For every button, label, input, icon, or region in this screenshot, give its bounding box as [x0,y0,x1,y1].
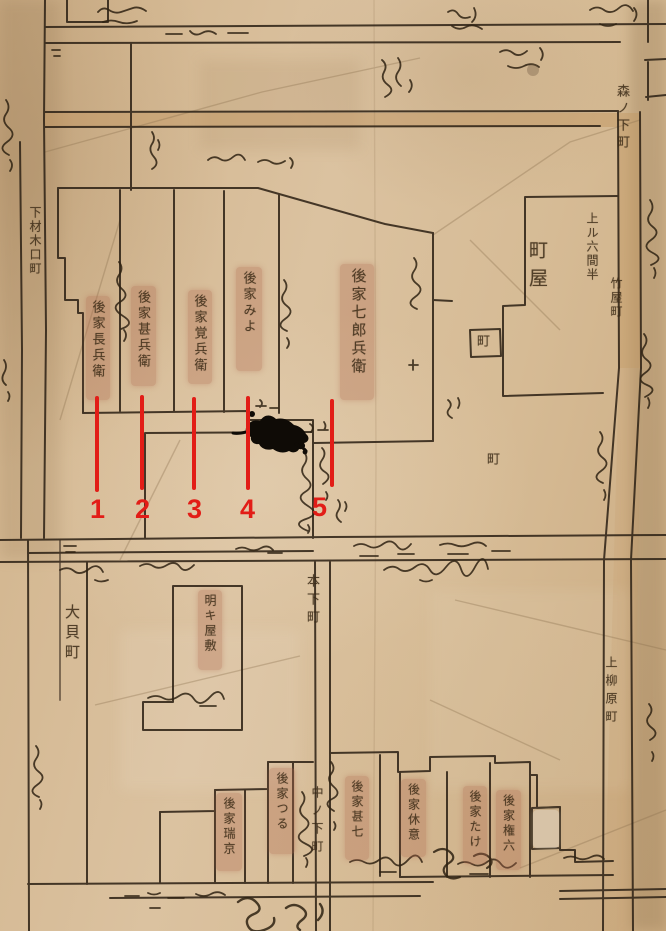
marker-number-4: 4 [240,496,255,523]
parcel-highlight-7: 後家つる [269,768,295,854]
parcel-label-10: 後家たけ [469,790,481,850]
parcel-highlight-6: 後家瑞京 [216,793,242,871]
label-naka-no-shita-machi: 中ノ下町 [311,786,323,858]
parcel-label-7: 後家つる [276,772,288,832]
marker-number-1: 1 [90,496,105,523]
label-machi-upper: 町 [476,334,489,350]
label-shimo-guchi-machi: 下材木口町 [29,206,41,276]
parcel-highlight-vacant: 明キ屋敷 [198,590,222,670]
parcel-label-4: 後家みよ [243,271,256,335]
parcel-label-9: 後家休意 [408,783,420,843]
parcel-label-5: 後家七郎兵衛 [350,268,365,376]
label-agaru-rokkenhan: 上ル六間半 [586,212,598,282]
parcel-highlight-3: 後家覚兵衛 [188,290,212,384]
historical-japanese-map: 後家長兵衛 後家甚兵衛 後家覚兵衛 後家みよ 後家七郎兵衛 後家瑞京 後家つる … [0,0,666,931]
label-machi-lower: 町 [486,452,499,468]
label-takeya-machi: 竹屋町 [610,277,622,319]
marker-line-4 [246,396,250,490]
parcel-highlight-11: 後家権六 [496,790,521,870]
parcel-label-3: 後家覚兵衛 [194,294,207,374]
parcel-highlight-2: 後家甚兵衛 [131,286,156,386]
marker-number-5: 5 [312,494,327,521]
label-ogai-machi: 大貝町 [63,604,78,664]
parcel-label-8: 後家甚七 [351,780,363,840]
marker-number-2: 2 [135,496,150,523]
parcel-highlight-1: 後家長兵衛 [86,296,110,400]
parcel-highlight-10: 後家たけ [463,786,487,864]
label-mori-no-shita-machi: 森ノ下町 [616,84,629,152]
parcel-label-1: 後家長兵衛 [92,300,105,380]
parcel-highlight-9: 後家休意 [401,779,426,857]
parcel-label-2: 後家甚兵衛 [137,290,150,370]
marker-number-3: 3 [187,496,202,523]
label-kami-yanagiwara-machi: 上柳原町 [605,656,617,728]
parcel-label-11: 後家権六 [503,794,515,854]
parcel-highlight-5: 後家七郎兵衛 [340,264,374,400]
parcel-highlight-8: 後家甚七 [345,776,369,860]
label-machiya: 町屋 [527,240,546,296]
parcel-label-vacant: 明キ屋敷 [204,594,216,654]
washed-parcel-box [533,810,559,848]
label-moto-shita-machi: 本下町 [306,574,319,628]
marker-line-1 [95,396,99,492]
marker-line-5 [330,399,334,487]
ink-blot [233,411,308,454]
parcel-label-6: 後家瑞京 [223,797,235,857]
parcel-highlight-4: 後家みよ [236,267,262,371]
marker-line-3 [192,397,196,490]
marker-line-2 [140,395,144,490]
